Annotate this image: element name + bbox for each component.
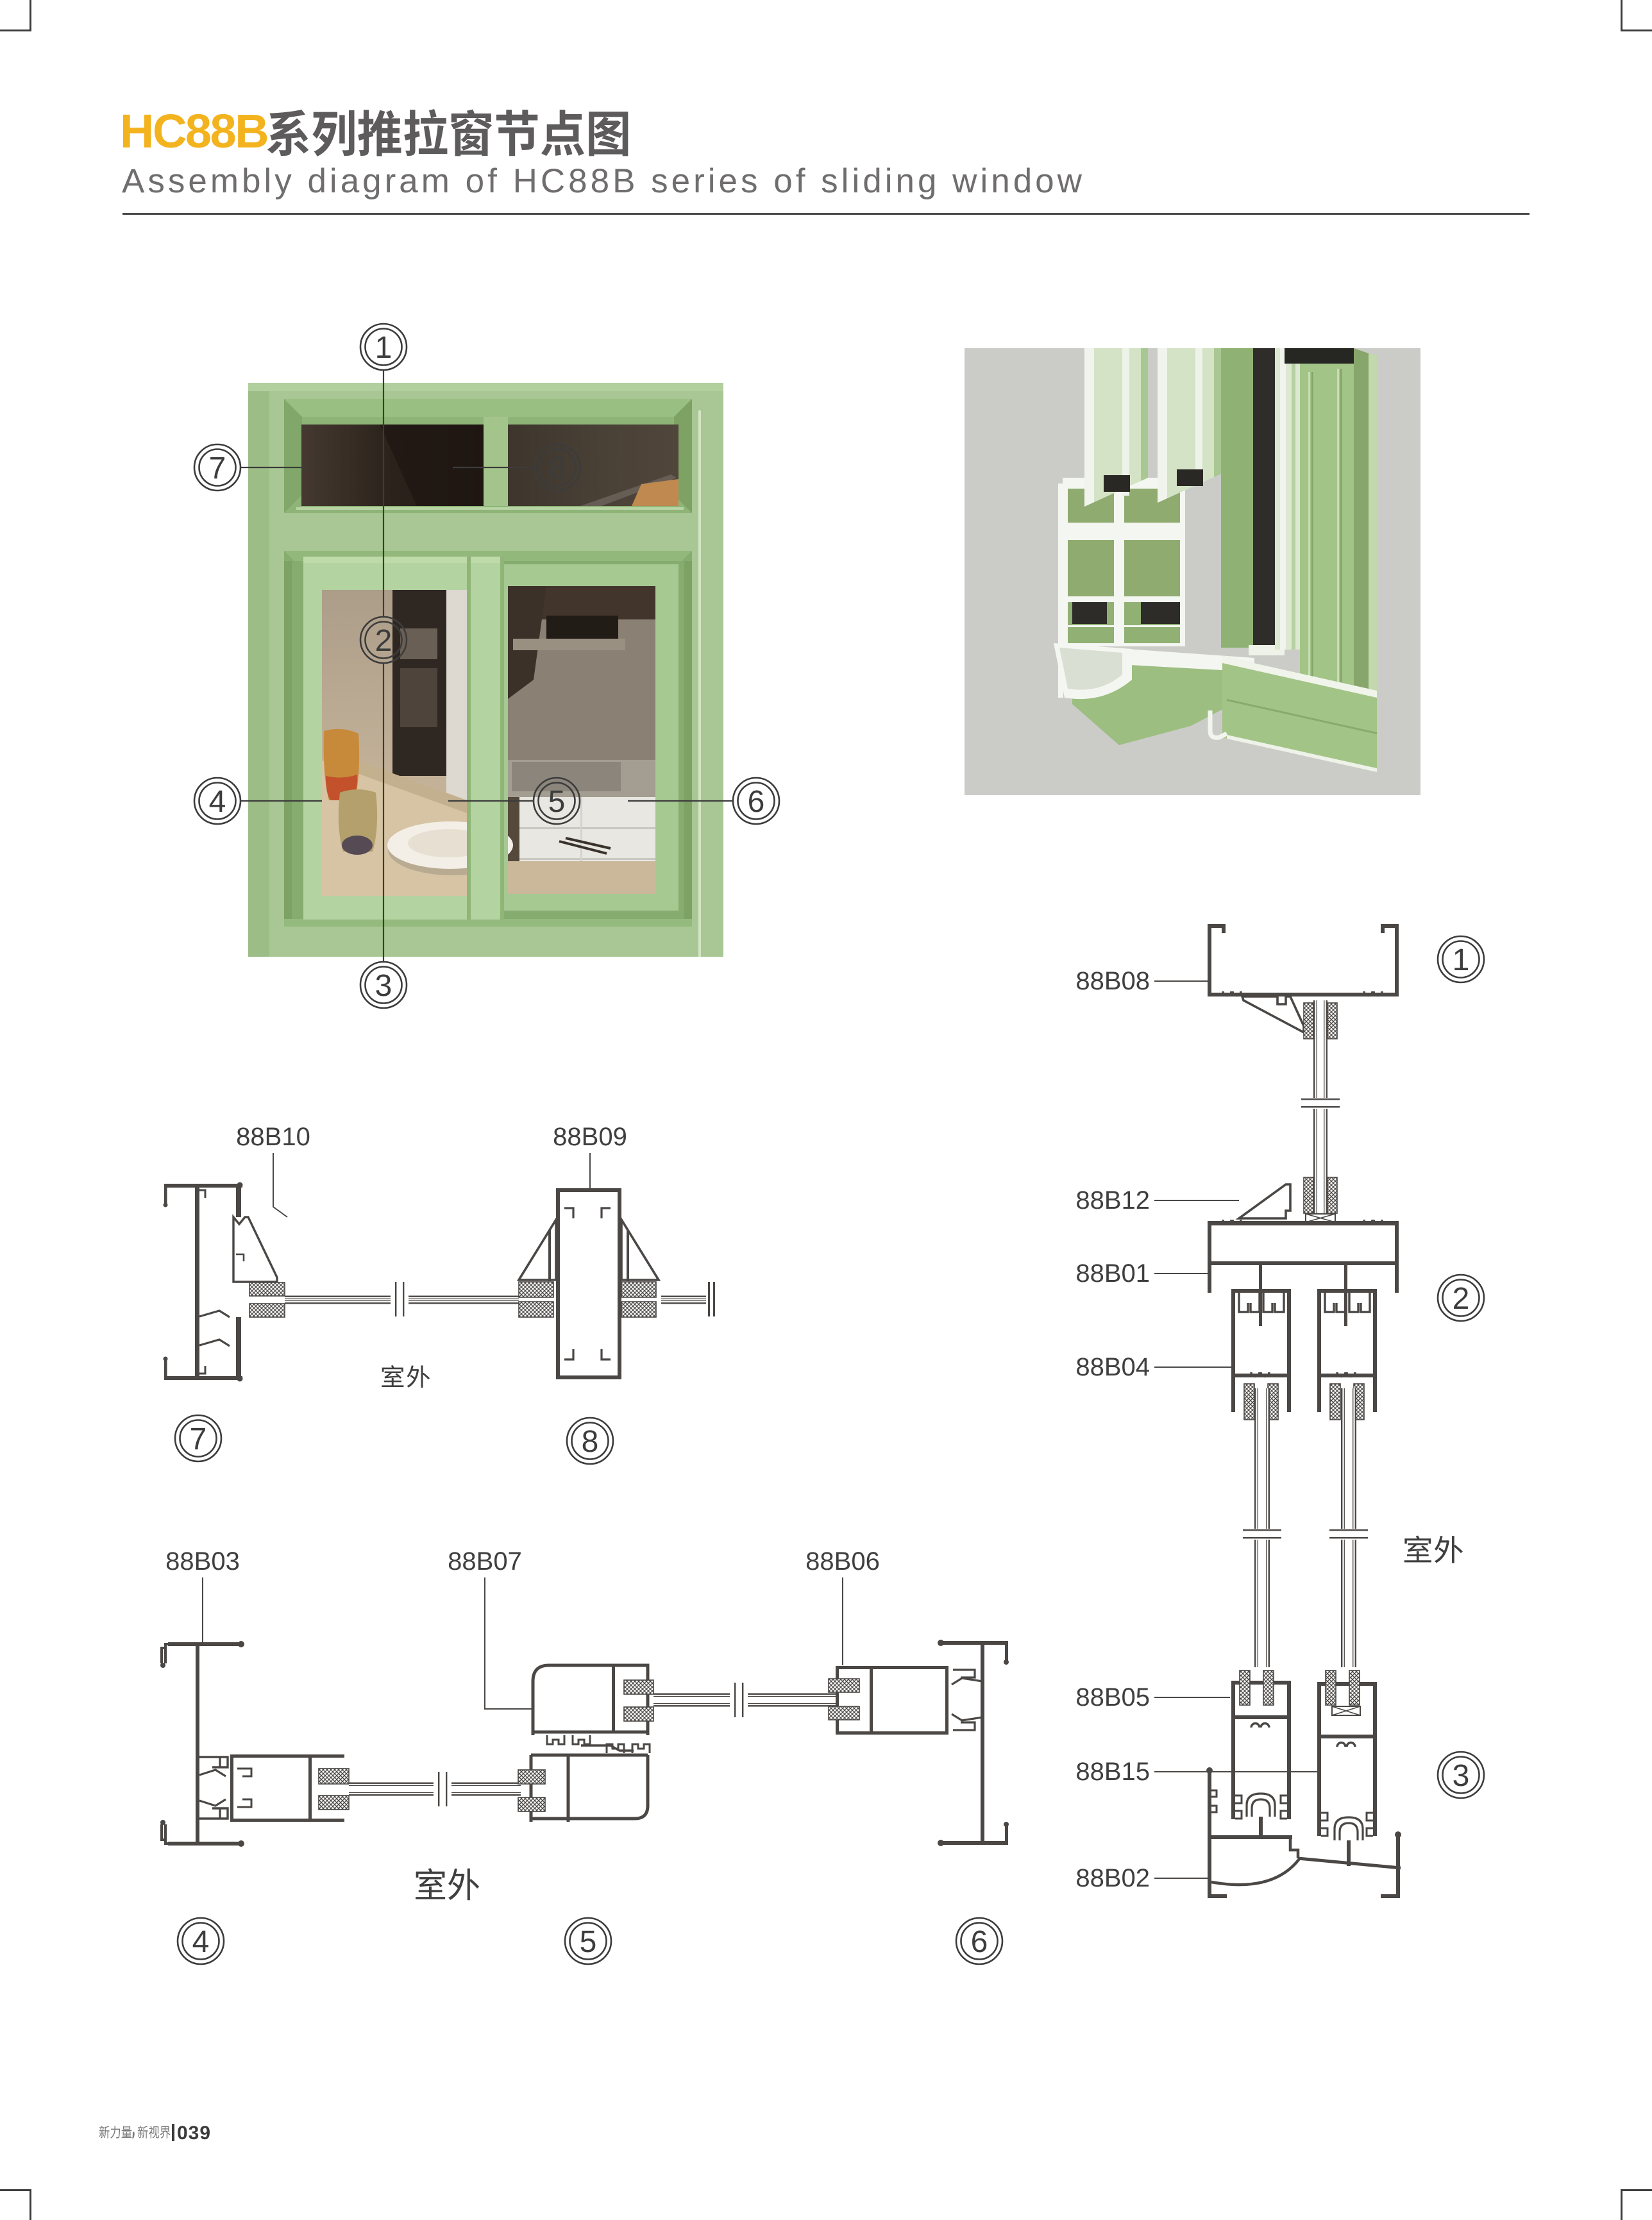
svg-text:88B01: 88B01: [1075, 1259, 1150, 1288]
svg-text:88B10: 88B10: [236, 1123, 310, 1151]
svg-text:88B03: 88B03: [165, 1547, 240, 1576]
svg-text:88B04: 88B04: [1075, 1353, 1150, 1381]
svg-text:3: 3: [375, 969, 392, 1003]
svg-text:6: 6: [971, 1925, 988, 1959]
svg-text:88B05: 88B05: [1075, 1683, 1150, 1711]
svg-text:5: 5: [548, 785, 566, 819]
svg-text:039: 039: [177, 2123, 211, 2144]
svg-text:7: 7: [209, 451, 226, 485]
svg-text:88B12: 88B12: [1075, 1186, 1150, 1215]
svg-text:88B07: 88B07: [448, 1547, 522, 1576]
svg-text:88B08: 88B08: [1075, 967, 1150, 995]
svg-text:4: 4: [192, 1925, 210, 1959]
svg-text:1: 1: [1453, 943, 1470, 977]
svg-text:3: 3: [1453, 1759, 1470, 1793]
svg-text:4: 4: [209, 785, 226, 819]
svg-text:88B06: 88B06: [805, 1547, 880, 1576]
svg-text:88B15: 88B15: [1075, 1758, 1150, 1786]
svg-text:88B09: 88B09: [553, 1123, 627, 1151]
svg-text:6: 6: [748, 785, 765, 819]
svg-text:2: 2: [375, 624, 392, 658]
svg-text:5: 5: [580, 1925, 597, 1959]
svg-text:1: 1: [375, 331, 392, 365]
svg-text:7: 7: [190, 1422, 207, 1456]
svg-text:2: 2: [1453, 1282, 1470, 1316]
svg-text:8: 8: [549, 451, 566, 485]
svg-text:8: 8: [582, 1425, 599, 1459]
svg-text:88B02: 88B02: [1075, 1864, 1150, 1892]
